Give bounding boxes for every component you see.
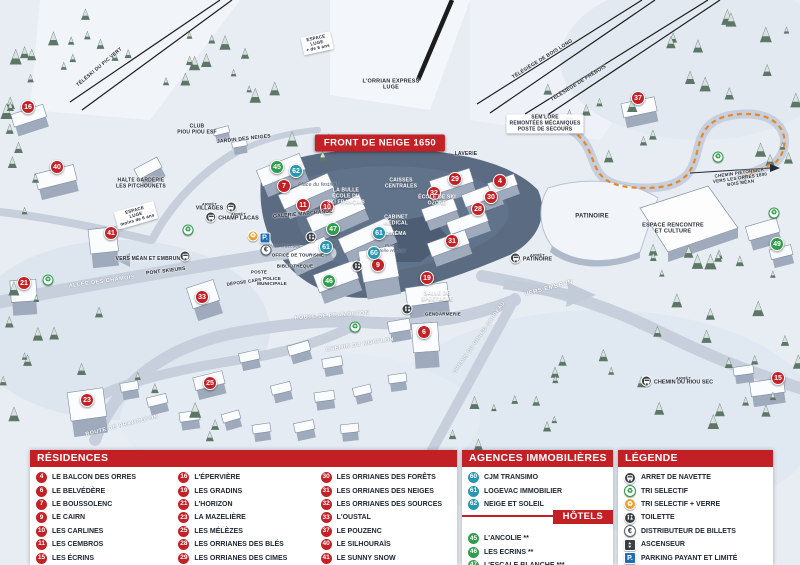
map-marker-61[interactable]: 61 — [372, 226, 386, 240]
map-marker-60[interactable]: 60 — [367, 246, 381, 260]
bus-icon — [180, 251, 191, 262]
legend-item-label: LE BELVÉDÈRE — [52, 488, 105, 495]
map-marker-7[interactable]: 7 — [277, 179, 291, 193]
legend-item-number: 37 — [321, 526, 332, 537]
legend-item-11: 11LES CEMBROS — [36, 538, 172, 551]
legend-item-label: LA MAZELIÈRE — [194, 514, 245, 521]
legend-item-label: LE SUNNY SNOW — [337, 555, 396, 562]
legend-item-label: LES CARLINES — [52, 528, 103, 535]
legend-item-label: L'OUSTAL — [337, 514, 371, 521]
legend-item-label: L'ANCOLIE ** — [484, 535, 529, 542]
legend-item-41: 41LE SUNNY SNOW — [321, 551, 457, 564]
map-label: POSTE — [251, 269, 267, 274]
map-marker-29[interactable]: 29 — [448, 172, 462, 186]
legend-item-label: LE CAIRN — [52, 514, 85, 521]
map-marker-15[interactable]: 15 — [771, 371, 785, 385]
legend-item-46: 46LES ECRINS ** — [468, 546, 613, 559]
panel-legende-header: LÉGENDE — [618, 450, 773, 467]
euro-icon: € — [261, 245, 272, 256]
legend-item-label: LE SILHOURAÏS — [337, 541, 391, 548]
map-marker-45[interactable]: 45 — [270, 160, 284, 174]
map-marker-6[interactable]: 6 — [417, 325, 431, 339]
legend-item-45: 45L'ANCOLIE ** — [468, 532, 613, 545]
legend-item-25: 25LES MÉLÈZES — [178, 525, 314, 538]
panel-residences-header: RÉSIDENCES — [30, 450, 457, 467]
legend-item-label: LES ECRINS ** — [484, 549, 533, 556]
legend-item-label: LES ÉCRINS — [52, 555, 94, 562]
map-label: GENDARMERIE — [425, 311, 461, 316]
legende-item-label: DISTRIBUTEUR DE BILLETS — [641, 528, 736, 535]
bus-stop[interactable] — [180, 251, 191, 262]
legend-item-29: 29LES ORRIANES DES CIMES — [178, 551, 314, 564]
map-marker-11[interactable]: 11 — [296, 198, 310, 212]
map-label: TÉLÉSKI DU PIC VERT — [76, 47, 124, 89]
residences-column-3: 30LES ORRIANES DES FORÊTS31LES ORRIANES … — [315, 467, 457, 565]
map-label: LAVERIE — [455, 152, 478, 158]
map-label: ALLÉE DES CHAMOIS — [68, 274, 135, 290]
legend-item-number: 9 — [36, 512, 47, 523]
map-label: SALLE DE SPECTACLE — [421, 291, 453, 303]
legend-item-number: 45 — [468, 533, 479, 544]
map-marker-30[interactable]: 30 — [484, 190, 498, 204]
map-label: CHEMIN PIÉTONNIER VERS LES ORRES 1800 BO… — [712, 167, 768, 190]
legend-item-label: L'ÉPERVIÈRE — [194, 474, 240, 481]
legend-item-61: 61LOGEVAC IMMOBILIER — [468, 484, 613, 497]
map-label: HALTE GARDERIE LES PITCHOUNETS — [116, 178, 166, 190]
legend-item-label: LES ORRIANES DES NEIGES — [337, 488, 434, 495]
legend-item-62: 62NEIGE ET SOLEIL — [468, 498, 613, 511]
residences-column-1: 4LE BALCON DES ORRES6LE BELVÉDÈRE7LE BOU… — [30, 467, 172, 565]
legende-item-recycle-o: ♻TRI SELECTIF + VERRE — [624, 498, 773, 511]
legend-item-number: 47 — [468, 560, 479, 565]
legend-item-19: 19LES GRADINS — [178, 484, 314, 497]
panel-agences-header: AGENCES IMMOBILIÈRES — [462, 450, 613, 467]
map-label: CAISSES CENTRALES — [385, 178, 417, 190]
legend-item-number: 7 — [36, 499, 47, 510]
map-marker-49[interactable]: 49 — [770, 237, 784, 251]
legend-item-number: 21 — [178, 499, 189, 510]
map-marker-37[interactable]: 37 — [631, 91, 645, 105]
hotels-badge: HÔTELS — [553, 510, 613, 524]
bus-icon — [624, 472, 636, 484]
legende-item-label: TOILETTE — [641, 514, 675, 521]
legend-item-60: 60CJM TRANSIMO — [468, 471, 613, 484]
legend-strip: RÉSIDENCES 4LE BALCON DES ORRES6LE BELVÉ… — [0, 448, 800, 565]
legend-item-label: LE BALCON DES ORRES — [52, 474, 136, 481]
map-marker-23[interactable]: 23 — [80, 393, 94, 407]
map-label: OFFICE DE TOURISME — [272, 252, 325, 257]
legend-item-label: LES MÉLÈZES — [194, 528, 243, 535]
legend-item-16: 16L'ÉPERVIÈRE — [178, 471, 314, 484]
map-label: ESPACE RENCONTRE ET CULTURE — [642, 223, 704, 236]
bus-stop-name: PATINOIRE — [523, 257, 552, 263]
legend-item-label: LES GRADINS — [194, 488, 242, 495]
legend-item-32: 32LES ORRIANES DES SOURCES — [321, 498, 457, 511]
map-label: ROUTE DE PRAMOUTON — [85, 414, 159, 438]
toilet-icon — [352, 261, 363, 272]
legend-item-label: LES ORRIANES DES BLÉS — [194, 541, 283, 548]
legende-item-euro: €DISTRIBUTEUR DE BILLETS — [624, 525, 773, 538]
legend-item-number: 29 — [178, 553, 189, 564]
legend-item-10: 10LES CARLINES — [36, 525, 172, 538]
map-marker-62[interactable]: 62 — [289, 164, 303, 178]
legend-item-6: 6LE BELVÉDÈRE — [36, 484, 172, 497]
map-label: TÉLÉSIÈGE DE PRÉBOIS — [550, 65, 608, 104]
recycle-o-icon: ♻ — [248, 231, 259, 242]
map-label: CABINET MÉDICAL — [384, 215, 408, 227]
map-label: Place d'accueil — [268, 243, 301, 248]
map-label: TÉLÉSIÈGE DE BOIS LONG — [512, 39, 575, 81]
legend-item-number: 31 — [321, 486, 332, 497]
legend-item-number: 60 — [468, 472, 479, 483]
legend-item-40: 40LE SILHOURAÏS — [321, 538, 457, 551]
legend-item-21: 21L'HORIZON — [178, 498, 314, 511]
legend-item-number: 25 — [178, 526, 189, 537]
map-label: CHEMIN DU GRAND CORBEAU — [453, 301, 507, 375]
euro-icon: € — [624, 525, 636, 537]
legend-item-number: 61 — [468, 486, 479, 497]
map-label: POLICE MUNICIPALE — [257, 276, 287, 286]
map-marker-10[interactable]: 10 — [320, 200, 334, 214]
panel-agences-hotels: AGENCES IMMOBILIÈRES 60CJM TRANSIMO61LOG… — [462, 450, 613, 565]
legend-item-label: LOGEVAC IMMOBILIER — [484, 488, 562, 495]
map-label: BIBLIOTHÈQUE — [277, 263, 313, 268]
legend-item-number: 62 — [468, 499, 479, 510]
map-label: ROUTE DE PRAMOUTON — [294, 310, 369, 322]
map-marker-16[interactable]: 16 — [21, 100, 35, 114]
map-marker-25[interactable]: 25 — [203, 376, 217, 390]
legend-item-number: 28 — [178, 539, 189, 550]
map-marker-41[interactable]: 41 — [104, 226, 118, 240]
legend-item-label: NEIGE ET SOLEIL — [484, 501, 544, 508]
legend-item-7: 7LE BOUSSOLENC — [36, 498, 172, 511]
legend-item-label: LES ORRIANES DES CIMES — [194, 555, 287, 562]
panel-residences: RÉSIDENCES 4LE BALCON DES ORRES6LE BELVÉ… — [30, 450, 457, 565]
legend-item-label: CJM TRANSIMO — [484, 474, 538, 481]
map-label: L'ORRIAN EXPRESS LUGE — [362, 79, 419, 92]
legende-item-recycle: ♻TRI SELECTIF — [624, 484, 773, 497]
legende-item-label: ASCENSEUR — [641, 541, 685, 548]
legend-item-number: 6 — [36, 486, 47, 497]
legend-item-number: 33 — [321, 512, 332, 523]
map-marker-32[interactable]: 32 — [427, 186, 441, 200]
map-label: PONT SKIEURS — [146, 267, 186, 278]
map-marker-46[interactable]: 46 — [322, 274, 336, 288]
front-de-neige-badge: FRONT DE NEIGE 1650 — [315, 135, 445, 152]
map-marker-4[interactable]: 4 — [493, 174, 507, 188]
recycle-icon: ♻ — [183, 225, 194, 236]
recycle-o-icon: ♻ — [624, 498, 636, 510]
map-label: VERS EMBRUN — [524, 279, 574, 299]
map-label: CLUB PIOU PIOU ESF — [177, 124, 217, 136]
map-label: CHEMIN DU MOUFLON — [325, 336, 394, 353]
legend-item-label: L'HORIZON — [194, 501, 232, 508]
legende-item-elev: ASCENSEUR — [624, 538, 773, 551]
legend-item-label: LE BOUSSOLENC — [52, 501, 112, 508]
legend-item-number: 19 — [178, 486, 189, 497]
legend-item-number: 30 — [321, 472, 332, 483]
legend-item-37: 37LE POUZENC — [321, 525, 457, 538]
map-label: VERS MÉAN ET EMBRUN — [116, 257, 181, 263]
legend-item-number: 40 — [321, 539, 332, 550]
legend-item-label: LES CEMBROS — [52, 541, 103, 548]
bus-stop-patinoire[interactable]: ARRÊTPATINOIRE — [510, 253, 552, 264]
map-label: CINÉMA — [386, 232, 407, 238]
map-marker-9[interactable]: 9 — [371, 258, 385, 272]
legend-item-4: 4LE BALCON DES ORRES — [36, 471, 172, 484]
recycle-icon: ♻ — [713, 152, 724, 163]
legend-item-33: 33L'OUSTAL — [321, 511, 457, 524]
panel-legende: LÉGENDE ARRET DE NAVETTE♻TRI SELECTIF♻TR… — [618, 450, 773, 565]
legend-item-31: 31LES ORRIANES DES NEIGES — [321, 484, 457, 497]
bus-icon — [641, 376, 652, 387]
recycle-icon: ♻ — [769, 208, 780, 219]
ski-resort-map: FRONT DE NEIGE 1650 16404121332523711109… — [0, 0, 800, 565]
recycle-icon: ♻ — [43, 275, 54, 286]
park-icon: P. — [624, 552, 636, 564]
map-marker-40[interactable]: 40 — [50, 160, 64, 174]
legende-item-toilet: TOILETTE — [624, 511, 773, 524]
legend-item-label: LE POUZENC — [337, 528, 382, 535]
map-marker-33[interactable]: 33 — [195, 290, 209, 304]
legend-item-number: 23 — [178, 512, 189, 523]
elev-icon — [624, 539, 636, 551]
legend-item-number: 4 — [36, 472, 47, 483]
legend-item-number: 15 — [36, 553, 47, 564]
hotels-divider: HÔTELS — [462, 515, 613, 525]
map-label: DÉPOSE CARS — [226, 277, 261, 287]
bus-stop-name: CHEMIN DU RIOU SEC — [654, 380, 713, 386]
map-label: JARDIN DES NEIGES — [217, 134, 271, 145]
legend-item-47: 47L'ESCALE BLANCHE *** — [468, 559, 613, 565]
map-label: PATINOIRE — [575, 214, 609, 221]
legend-item-number: 11 — [36, 539, 47, 550]
toilet-icon — [306, 232, 317, 243]
toilet-icon — [624, 512, 636, 524]
residences-column-2: 16L'ÉPERVIÈRE19LES GRADINS21L'HORIZON23L… — [172, 467, 314, 565]
legend-item-number: 16 — [178, 472, 189, 483]
legende-item-bus: ARRET DE NAVETTE — [624, 471, 773, 484]
legend-item-9: 9LE CAIRN — [36, 511, 172, 524]
bus-icon — [205, 212, 216, 223]
legend-item-label: LES ORRIANES DES SOURCES — [337, 501, 442, 508]
recycle-icon: ♻ — [624, 485, 636, 497]
toilet-icon — [402, 304, 413, 315]
map-marker-31[interactable]: 31 — [445, 234, 459, 248]
map-label: ESPACE LUGE + de 6 ans — [301, 31, 334, 54]
bus-stop-name: CHAMP LACAS — [218, 216, 259, 222]
recycle-icon: ♻ — [350, 322, 361, 333]
legend-item-label: LES ORRIANES DES FORÊTS — [337, 474, 436, 481]
bus-stop-champ-lacas[interactable]: ARRÊTCHAMP LACAS — [205, 212, 259, 223]
legend-item-number: 32 — [321, 499, 332, 510]
bus-stop-chemin-du-riou-sec[interactable]: ARRÊTCHEMIN DU RIOU SEC — [641, 376, 713, 387]
map-label: Place du festival — [298, 183, 338, 189]
park-icon: P. — [260, 233, 271, 244]
legende-item-label: PARKING PAYANT ET LIMITÉ — [641, 555, 737, 562]
map-marker-61[interactable]: 61 — [319, 240, 333, 254]
map-marker-28[interactable]: 28 — [471, 202, 485, 216]
legend-item-30: 30LES ORRIANES DES FORÊTS — [321, 471, 457, 484]
legend-item-23: 23LA MAZELIÈRE — [178, 511, 314, 524]
legend-item-28: 28LES ORRIANES DES BLÉS — [178, 538, 314, 551]
legende-item-park: P.PARKING PAYANT ET LIMITÉ — [624, 551, 773, 564]
map-marker-47[interactable]: 47 — [326, 222, 340, 236]
legend-item-number: 10 — [36, 526, 47, 537]
legende-item-label: TRI SELECTIF — [641, 488, 688, 495]
map-label: SEM'LORE REMONTÉES MÉCANIQUES POSTE DE S… — [507, 114, 584, 133]
bus-icon — [510, 253, 521, 264]
map-label: ESPACE LUGE moins de 6 ans — [114, 201, 159, 229]
legend-item-number: 46 — [468, 547, 479, 558]
map-marker-21[interactable]: 21 — [17, 276, 31, 290]
legende-item-label: ARRET DE NAVETTE — [641, 474, 711, 481]
map-marker-19[interactable]: 19 — [420, 271, 434, 285]
legend-item-15: 15LES ÉCRINS — [36, 551, 172, 564]
legende-item-label: TRI SELECTIF + VERRE — [641, 501, 720, 508]
legend-item-number: 41 — [321, 553, 332, 564]
